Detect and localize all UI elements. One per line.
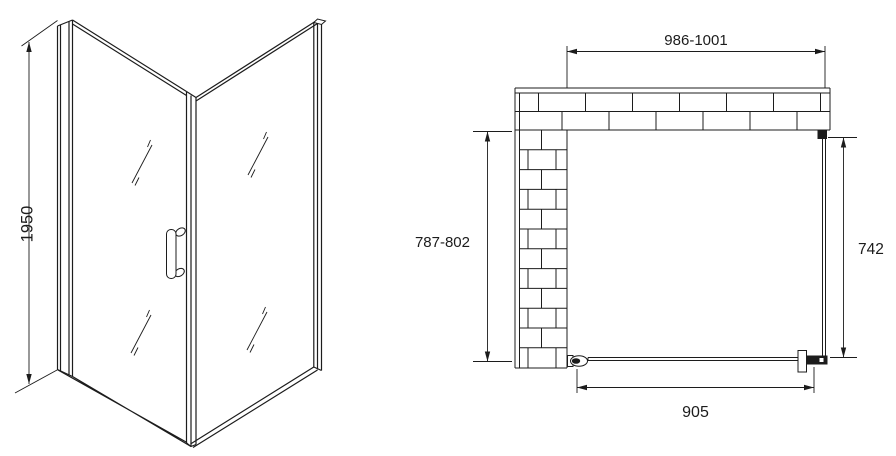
height-label: 1950	[19, 206, 37, 243]
wall-bracket-top	[818, 131, 828, 140]
shower-enclosure-drawing: 1950	[0, 0, 896, 456]
technical-drawing-page: 1950	[0, 0, 896, 456]
dimension-width: 986-1001	[567, 32, 825, 88]
side-glass-panel	[807, 131, 828, 365]
side-panel-label: 742	[858, 241, 884, 258]
door-hinge	[568, 356, 588, 367]
brick-wall	[515, 88, 830, 368]
dimension-side-panel: 742	[828, 138, 884, 358]
corner-post	[187, 92, 197, 447]
door-plan	[568, 351, 808, 373]
dimension-depth: 787-802	[415, 132, 512, 362]
door-top-rail	[73, 20, 187, 96]
side-panel-top-rail	[196, 20, 318, 101]
glass-marks	[131, 132, 268, 356]
hinge-wall-profile	[58, 20, 73, 377]
door-handle	[167, 226, 187, 278]
depth-label: 787-802	[415, 234, 470, 251]
perspective-view: 1950	[15, 19, 326, 448]
dimension-height: 1950	[15, 21, 58, 394]
width-label: 986-1001	[664, 32, 727, 49]
side-panel-bottom-rail	[191, 367, 322, 448]
door-bottom-rail	[58, 370, 191, 447]
plan-view: 986-1001 787-802 742 905	[415, 32, 884, 421]
dimension-door-width: 905	[577, 367, 814, 421]
door-width-label: 905	[682, 404, 709, 421]
door-knob	[798, 351, 807, 373]
wall-post-right	[314, 19, 326, 371]
